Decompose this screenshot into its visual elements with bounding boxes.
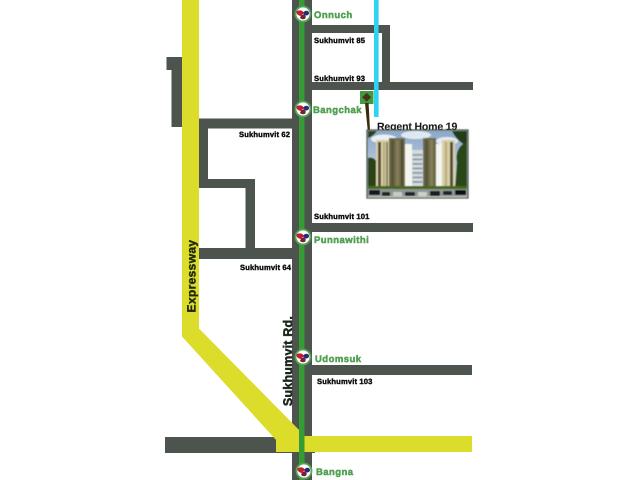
- svg-text:Sukhumvit 64: Sukhumvit 64: [240, 263, 292, 272]
- svg-text:Sukhumvit 62: Sukhumvit 62: [239, 130, 290, 139]
- svg-text:Sukhumvit 101: Sukhumvit 101: [314, 212, 370, 221]
- svg-text:Expressway: Expressway: [185, 240, 199, 313]
- svg-text:Sukhumvit 103: Sukhumvit 103: [317, 377, 373, 386]
- svg-text:Bangna: Bangna: [316, 467, 354, 478]
- svg-text:Sukhumvit 93: Sukhumvit 93: [314, 74, 365, 83]
- svg-text:Sukhumvit Rd.: Sukhumvit Rd.: [281, 316, 295, 406]
- svg-text:Punnawithi: Punnawithi: [314, 235, 369, 246]
- svg-text:Onnuch: Onnuch: [314, 10, 353, 21]
- svg-text:Udomsuk: Udomsuk: [315, 354, 362, 365]
- svg-text:Bangchak: Bangchak: [313, 105, 362, 116]
- svg-text:Sukhumvit 85: Sukhumvit 85: [314, 36, 366, 45]
